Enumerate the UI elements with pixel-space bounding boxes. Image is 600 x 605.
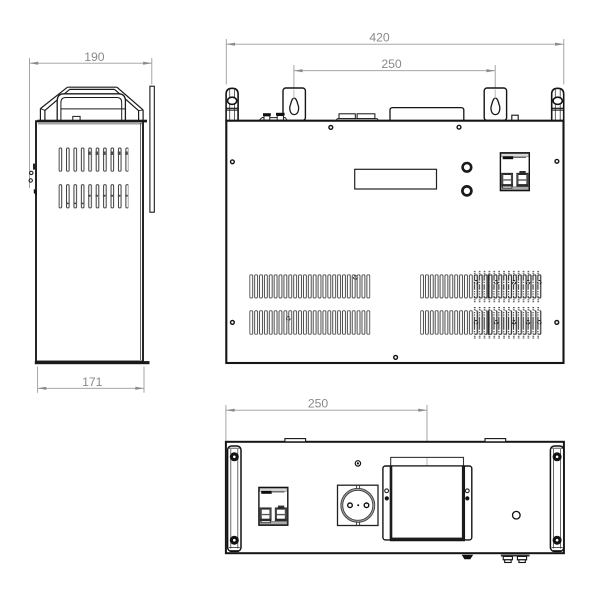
svg-text:420: 420 [369,31,390,45]
svg-text:171: 171 [82,375,103,389]
svg-text:190: 190 [84,50,105,64]
svg-text:250: 250 [308,396,329,410]
svg-text:250: 250 [381,57,402,71]
